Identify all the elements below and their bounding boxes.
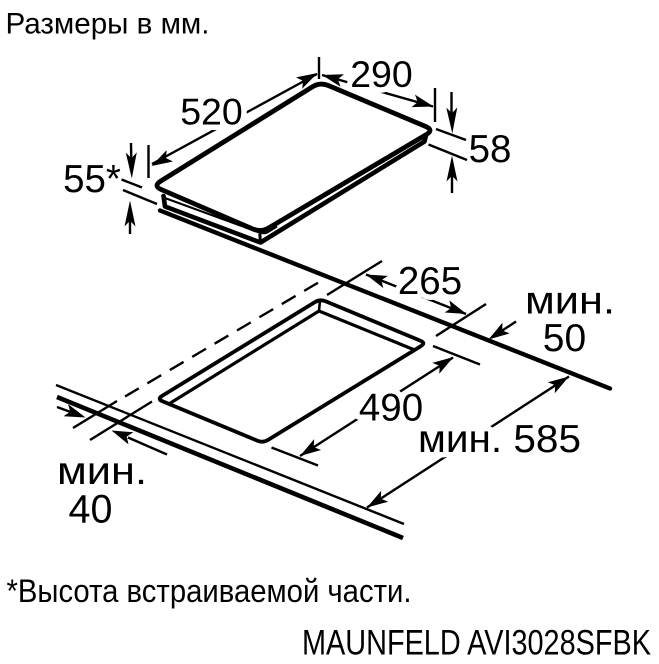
svg-text:58: 58 xyxy=(469,128,512,171)
svg-text:50: 50 xyxy=(543,317,586,360)
svg-text:55*: 55* xyxy=(63,158,121,201)
svg-text:40: 40 xyxy=(69,488,113,532)
svg-text:Размеры в мм.: Размеры в мм. xyxy=(6,8,210,41)
svg-text:290: 290 xyxy=(350,53,413,95)
svg-text:490: 490 xyxy=(359,387,423,430)
svg-text:265: 265 xyxy=(398,260,462,303)
svg-text:MAUNFELD AVI3028SFBK: MAUNFELD AVI3028SFBK xyxy=(302,624,651,663)
svg-text:520: 520 xyxy=(180,91,243,133)
svg-text:*Высота встраиваемой части.: *Высота встраиваемой части. xyxy=(7,573,412,609)
svg-text:мин. 585: мин. 585 xyxy=(418,418,581,461)
